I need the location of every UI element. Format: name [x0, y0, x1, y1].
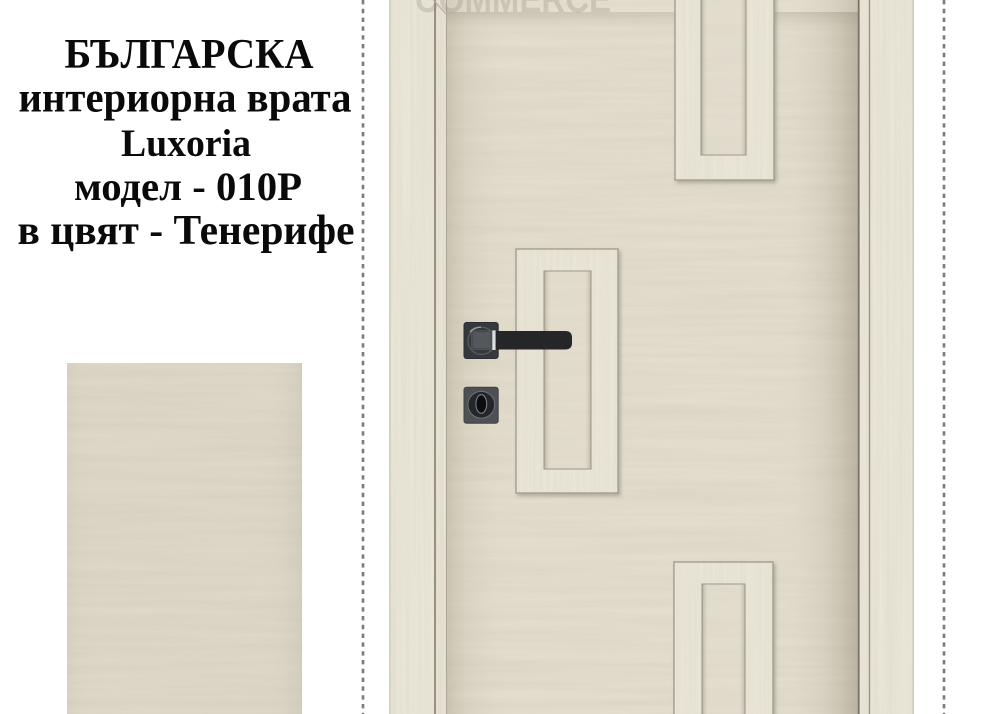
svg-text:интериорна врата: интериорна врата — [19, 76, 352, 122]
svg-text:COMMERCE: COMMERCE — [415, 0, 611, 21]
svg-text:Luxoria: Luxoria — [121, 122, 251, 165]
svg-text:модел - 010P: модел - 010P — [74, 164, 302, 209]
svg-text:в цвят - Тенерифе: в цвят - Тенерифе — [18, 208, 355, 254]
svg-text:БЪЛГАРСКА: БЪЛГАРСКА — [65, 32, 315, 78]
